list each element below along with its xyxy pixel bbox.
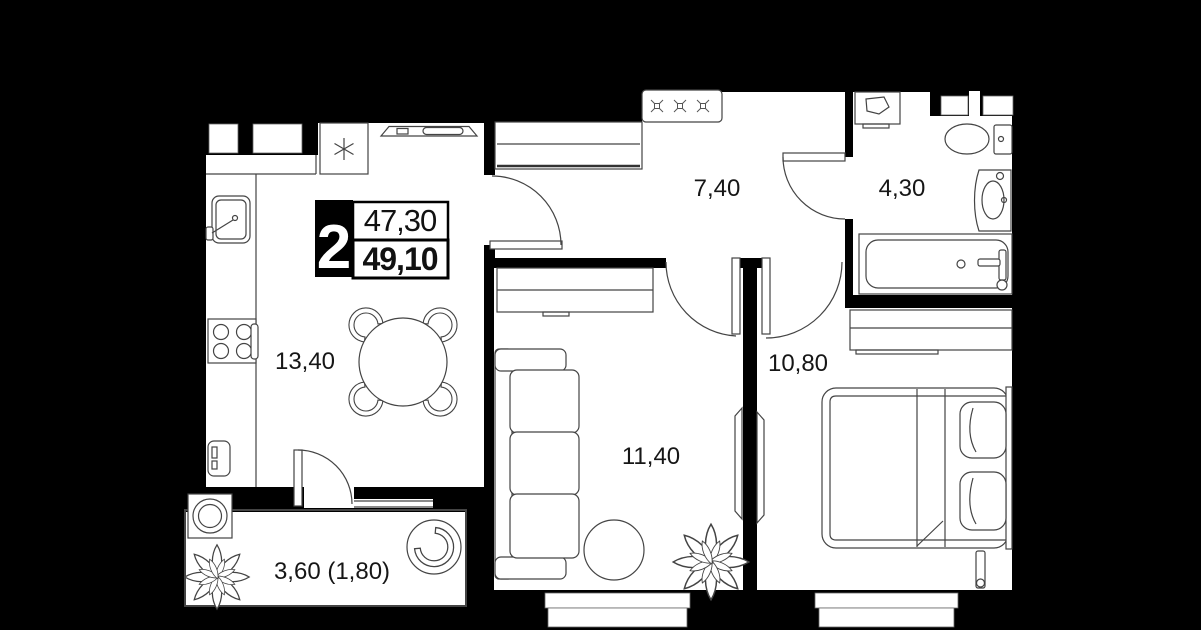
area-label-bedroom: 10,80	[768, 350, 828, 377]
floor-plan: 2 47,30 49,10 13,40 7,40 4,30 10,80 11,4…	[0, 0, 1201, 630]
tv-icon	[757, 412, 764, 523]
area-label-bathroom: 4,30	[879, 175, 926, 202]
floor-plan-page: 2 47,30 49,10 13,40 7,40 4,30 10,80 11,4…	[0, 0, 1201, 630]
kitchen-sink-icon	[206, 196, 250, 243]
sofa-icon	[495, 349, 579, 579]
area-label-kitchen: 13,40	[275, 348, 335, 375]
toilet-icon	[945, 124, 1012, 154]
hood-icon	[381, 127, 477, 137]
area-top-value: 47,30	[364, 203, 437, 238]
bathroom-sink-icon	[975, 170, 1012, 231]
stove-icon	[208, 319, 258, 363]
area-bottom-value: 49,10	[362, 241, 437, 277]
plant-icon	[185, 545, 249, 609]
area-label-living: 11,40	[622, 443, 680, 470]
tv-icon	[735, 408, 742, 519]
kitchen-shaft-window	[209, 124, 238, 153]
dishwasher-icon	[208, 441, 230, 476]
floor-lamp-icon	[976, 551, 985, 588]
rooms-count: 2	[317, 213, 351, 282]
plant-icon	[673, 524, 749, 600]
window-bedroom	[815, 593, 958, 627]
round-chair-icon	[407, 520, 462, 575]
coffee-table-icon	[584, 520, 644, 580]
area-label-hallway: 7,40	[694, 175, 741, 202]
unit-badge: 2 47,30 49,10	[315, 200, 448, 282]
coat-hangers-icon	[642, 90, 722, 122]
fridge-icon	[320, 123, 368, 174]
vent-shaft-block	[930, 85, 1013, 116]
washing-machine-icon	[855, 92, 900, 128]
bathtub-icon	[859, 234, 1012, 294]
bed-icon	[822, 387, 1012, 549]
area-label-balcony: 3,60 (1,80)	[274, 558, 390, 585]
dresser-icon	[850, 310, 1012, 354]
dryer-icon	[188, 494, 232, 538]
kitchen-shaft-window	[253, 124, 302, 153]
window-living	[545, 593, 690, 627]
